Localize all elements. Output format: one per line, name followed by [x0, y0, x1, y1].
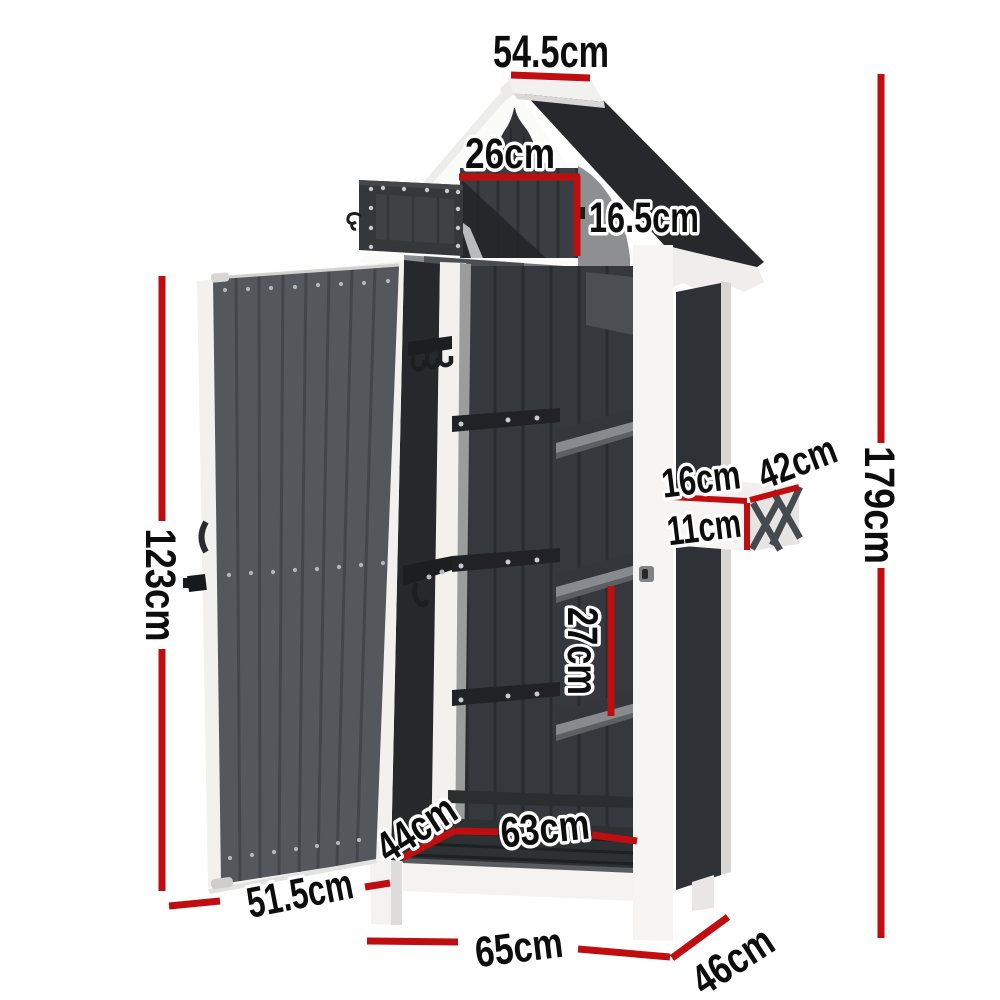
svg-text:16.5cm: 16.5cm — [589, 194, 699, 242]
svg-text:179cm: 179cm — [855, 446, 903, 564]
svg-text:63cm: 63cm — [498, 800, 592, 857]
svg-text:54.5cm: 54.5cm — [493, 26, 609, 77]
svg-text:11cm: 11cm — [664, 500, 743, 555]
svg-text:16cm: 16cm — [659, 451, 743, 506]
svg-text:123cm: 123cm — [136, 529, 184, 642]
svg-text:26cm: 26cm — [465, 130, 555, 178]
svg-text:27cm: 27cm — [558, 607, 606, 695]
